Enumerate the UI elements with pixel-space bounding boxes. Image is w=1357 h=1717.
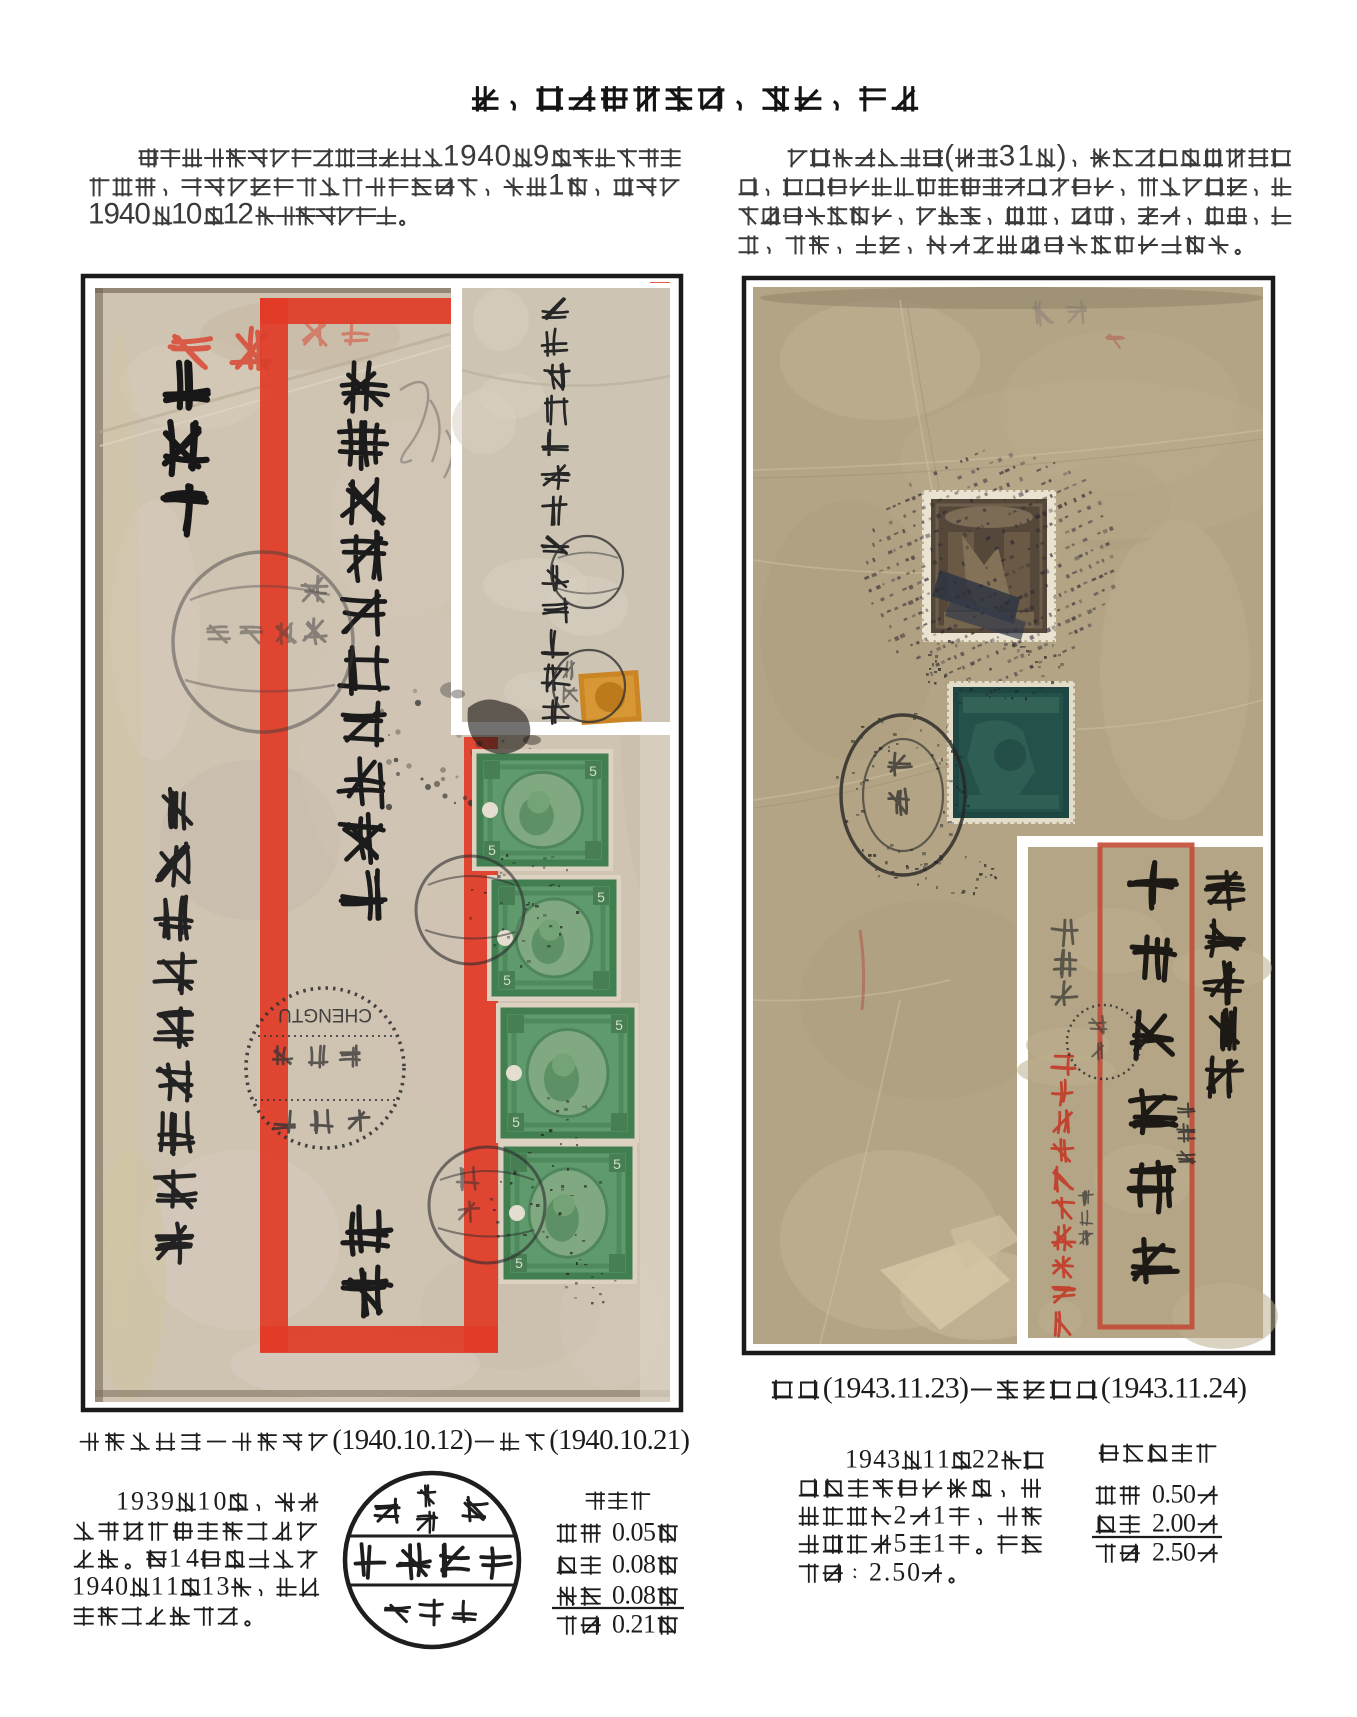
- svg-text:12: 12: [223, 197, 254, 230]
- svg-text:5: 5: [589, 763, 597, 779]
- svg-text:1943: 1943: [845, 1445, 900, 1474]
- svg-text:2.50: 2.50: [1152, 1538, 1196, 1567]
- svg-text:CHENGTU: CHENGTU: [278, 1004, 372, 1025]
- svg-text:(: (: [944, 139, 954, 172]
- svg-text:5: 5: [488, 842, 496, 858]
- svg-text:0.08: 0.08: [612, 1581, 656, 1610]
- svg-text:1940: 1940: [88, 197, 151, 230]
- svg-text:5: 5: [512, 1114, 520, 1130]
- svg-text:2: 2: [894, 1501, 907, 1530]
- svg-text:0.08: 0.08: [612, 1550, 656, 1579]
- svg-text:2.50: 2.50: [869, 1558, 920, 1587]
- svg-text:1: 1: [933, 1529, 946, 1558]
- svg-text:(1943.11.24): (1943.11.24): [1101, 1372, 1247, 1405]
- svg-text:(1940.10.21): (1940.10.21): [549, 1424, 690, 1456]
- svg-text:1: 1: [548, 168, 564, 201]
- svg-text:0.05: 0.05: [612, 1518, 656, 1547]
- svg-text:1940: 1940: [443, 139, 511, 172]
- svg-text:9: 9: [533, 139, 549, 172]
- svg-text:5: 5: [515, 1255, 523, 1271]
- svg-text:5: 5: [894, 1529, 907, 1558]
- svg-text:2.00: 2.00: [1152, 1509, 1196, 1538]
- svg-text:(1940.10.12): (1940.10.12): [332, 1424, 473, 1456]
- svg-text:0.21: 0.21: [612, 1610, 656, 1639]
- svg-text:0.50: 0.50: [1152, 1480, 1196, 1509]
- svg-text:): ): [1057, 139, 1067, 172]
- svg-text:22: 22: [972, 1445, 1000, 1474]
- svg-text:(1943.11.23): (1943.11.23): [823, 1372, 969, 1405]
- svg-text:11: 11: [922, 1445, 950, 1474]
- svg-text:1: 1: [933, 1501, 946, 1530]
- svg-text:5: 5: [503, 972, 511, 988]
- svg-text:10: 10: [171, 197, 202, 230]
- svg-text:5: 5: [615, 1017, 623, 1033]
- svg-text:5: 5: [613, 1156, 621, 1172]
- svg-text:1940: 1940: [72, 1572, 128, 1601]
- svg-text:5: 5: [597, 889, 605, 905]
